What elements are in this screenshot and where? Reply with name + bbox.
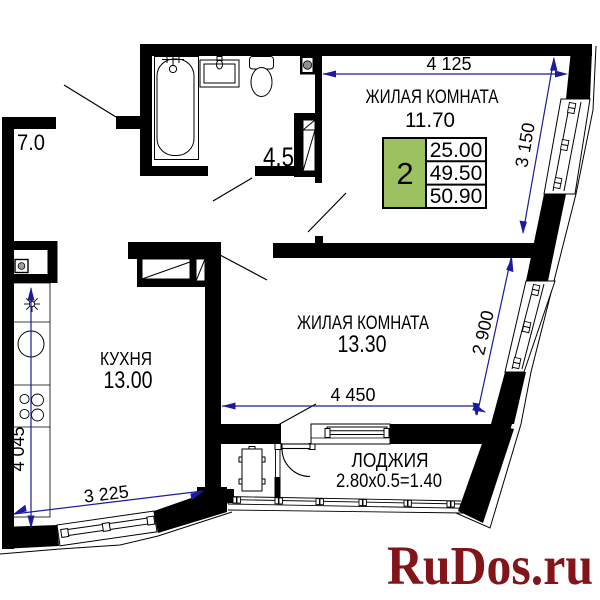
svg-text:ЖИЛАЯ КОМНАТА: ЖИЛАЯ КОМНАТА [366, 87, 499, 108]
svg-text:ЛОДЖИЯ: ЛОДЖИЯ [352, 450, 429, 472]
svg-text:11.70: 11.70 [405, 109, 455, 132]
svg-text:2.80х0.5=1.40: 2.80х0.5=1.40 [336, 471, 442, 492]
svg-text:КУХНЯ: КУХНЯ [100, 349, 152, 369]
svg-text:13.30: 13.30 [338, 331, 387, 358]
svg-text:7.0: 7.0 [17, 130, 45, 155]
svg-text:4 045: 4 045 [8, 426, 28, 471]
svg-text:4 450: 4 450 [330, 385, 375, 405]
svg-text:25.00: 25.00 [430, 139, 483, 162]
svg-text:4.5: 4.5 [263, 142, 294, 172]
svg-text:50.90: 50.90 [430, 185, 483, 208]
svg-text:13.00: 13.00 [104, 367, 153, 394]
svg-text:2: 2 [396, 156, 413, 191]
svg-text:RuDos.ru: RuDos.ru [387, 535, 593, 596]
svg-text:49.50: 49.50 [430, 162, 483, 185]
svg-text:4 125: 4 125 [426, 54, 471, 74]
